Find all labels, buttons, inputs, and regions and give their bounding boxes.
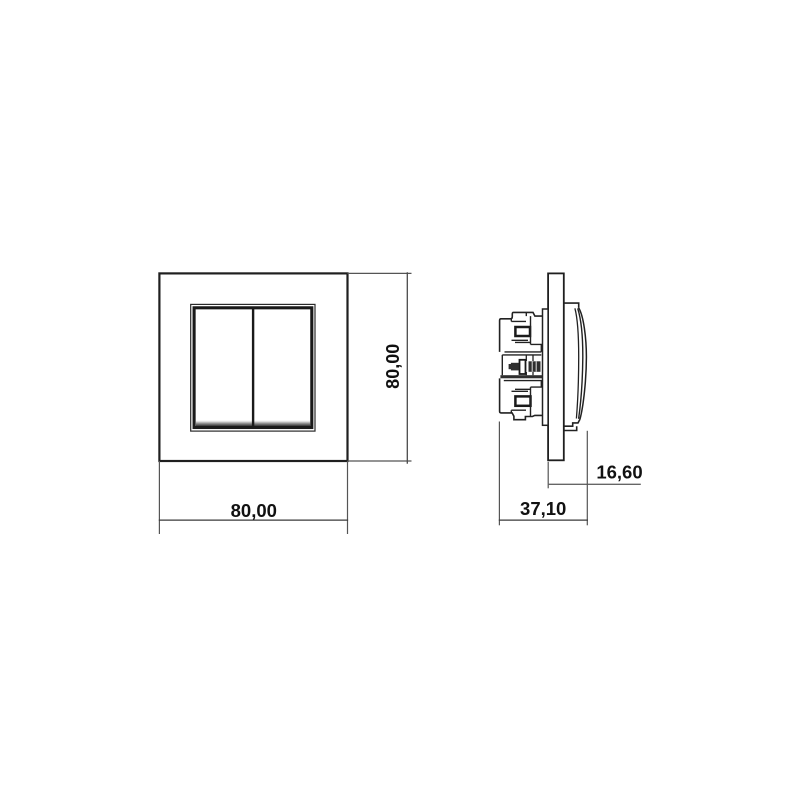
svg-text:80,00: 80,00	[231, 500, 277, 521]
svg-text:16,60: 16,60	[596, 461, 642, 482]
svg-text:37,10: 37,10	[520, 498, 566, 519]
svg-text:80,00: 80,00	[383, 344, 403, 389]
